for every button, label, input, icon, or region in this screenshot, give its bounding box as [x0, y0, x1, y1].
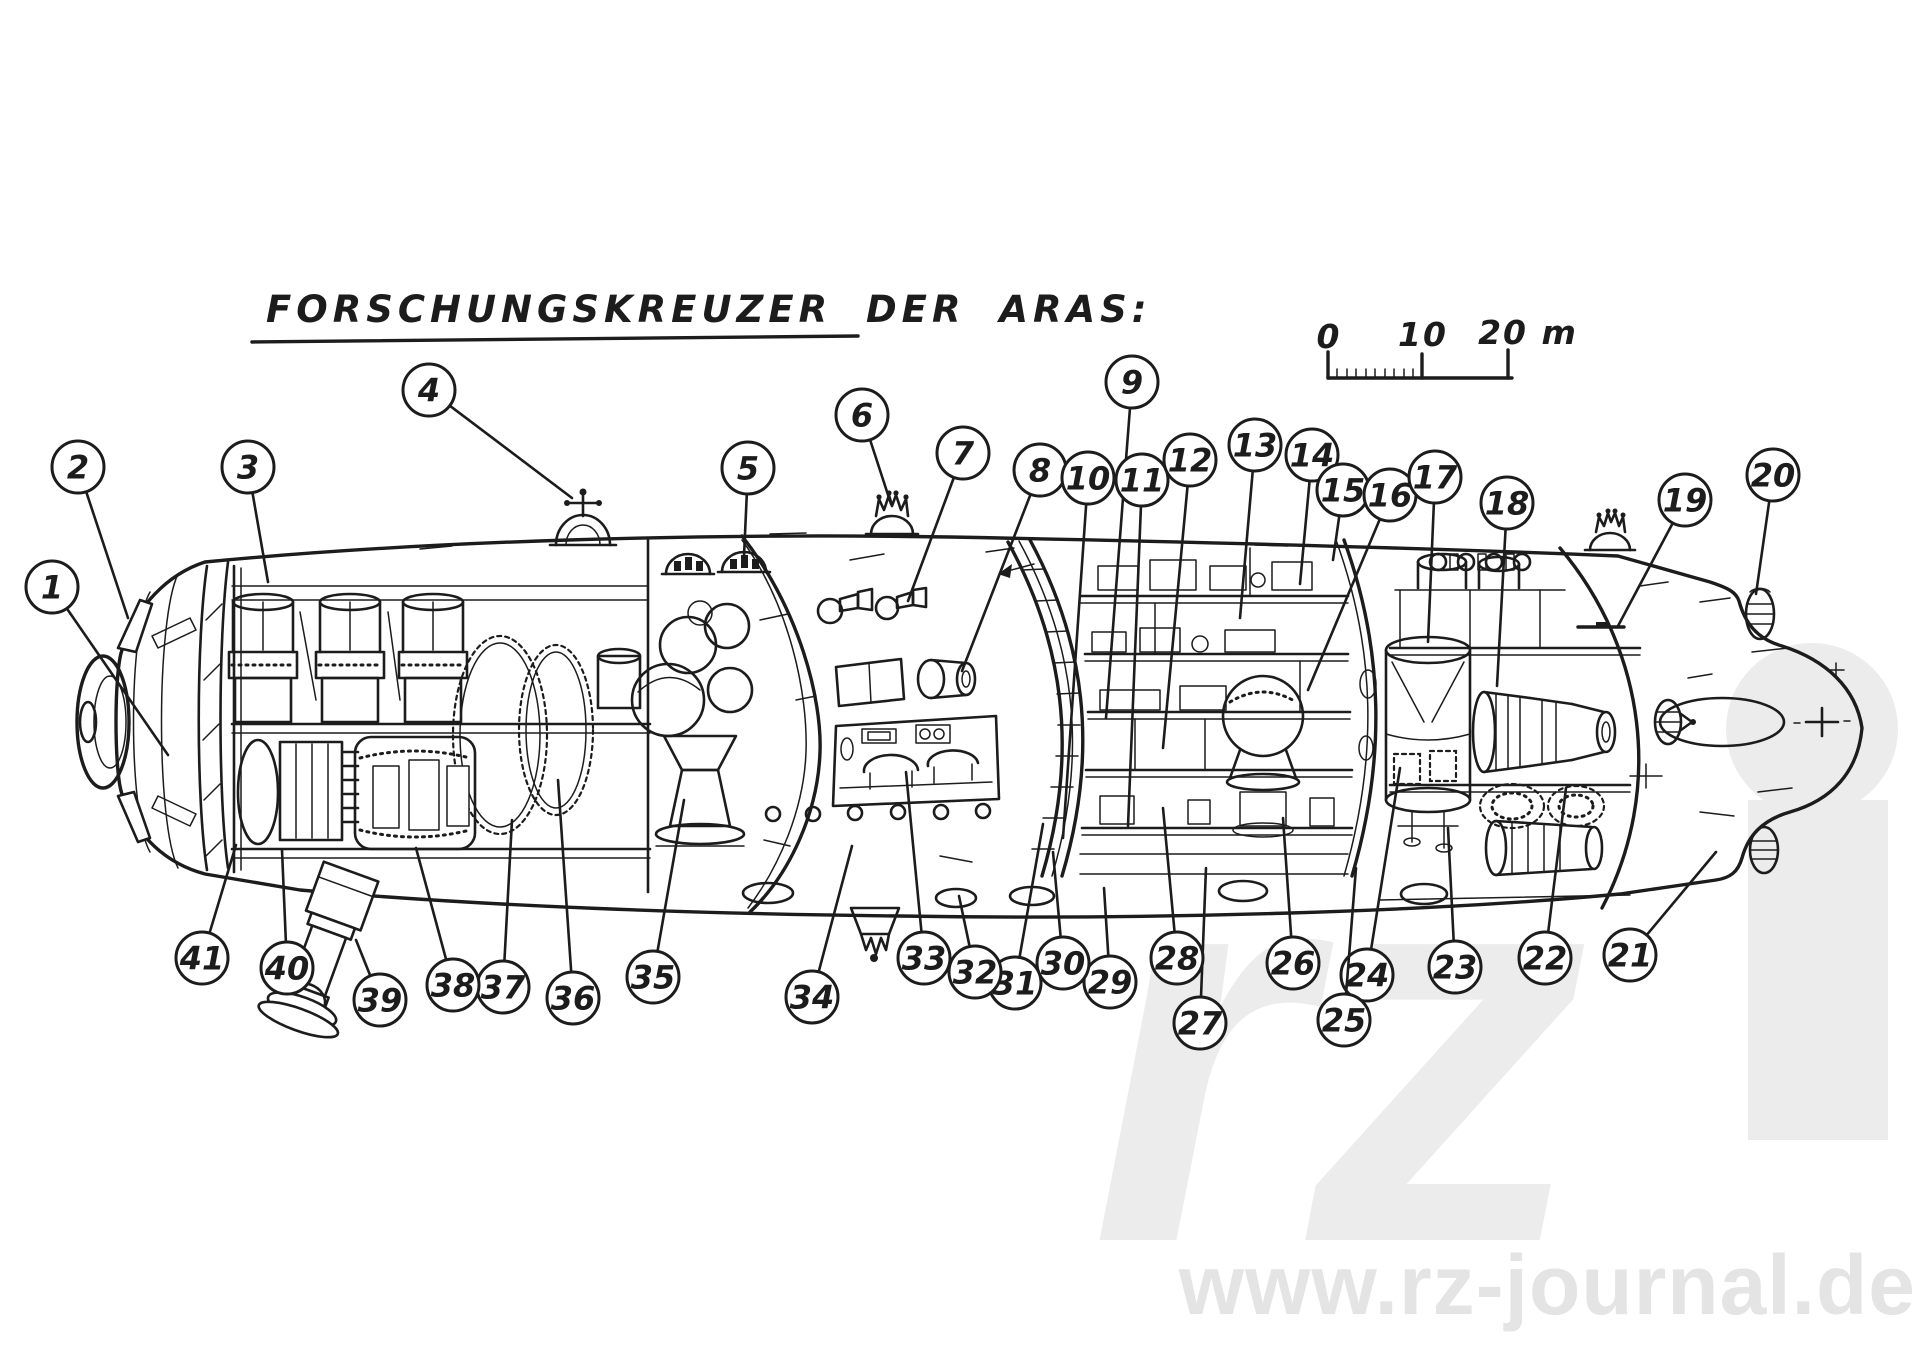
callout-number-6: 6 — [851, 397, 873, 435]
control-console — [833, 716, 999, 806]
scale-label-0: 0 — [1317, 317, 1342, 356]
viewport-window — [836, 659, 904, 706]
callout-leader-12 — [1163, 486, 1188, 748]
callout-leader-20 — [1756, 501, 1769, 594]
scale-bar: 0 10 20 m — [1317, 313, 1578, 378]
diagram-title: FORSCHUNGSKREUZER DER ARAS: — [266, 288, 1152, 331]
callout-number-34: 34 — [790, 979, 835, 1017]
callout-number-18: 18 — [1485, 485, 1530, 523]
callout-12: 12 — [1163, 434, 1216, 748]
nose-section — [77, 562, 228, 870]
callout-7: 7 — [908, 427, 989, 601]
watermark-bar-shape — [1748, 800, 1888, 1140]
callout-number-41: 41 — [179, 940, 225, 978]
title-underline — [252, 336, 858, 342]
scope-cylinder — [918, 660, 975, 698]
callout-8: 8 — [962, 444, 1066, 671]
callout-leader-8 — [962, 494, 1031, 671]
callout-number-36: 36 — [551, 980, 596, 1018]
callout-number-37: 37 — [481, 969, 526, 1007]
fuel-cylinder-stacks — [229, 594, 467, 722]
callout-number-5: 5 — [737, 450, 759, 488]
callout-leader-2 — [86, 492, 128, 618]
callout-number-22: 22 — [1523, 940, 1568, 978]
callout-leader-31 — [1020, 824, 1043, 957]
radio-dome — [550, 489, 616, 546]
callout-number-25: 25 — [1322, 1002, 1367, 1040]
cutaway-diagram-svg: rz www.rz-journal.de FORSCHUNGSKREUZER D… — [0, 0, 1920, 1356]
callout-leader-17 — [1428, 503, 1434, 642]
callout-number-10: 10 — [1066, 460, 1111, 498]
callout-21: 21 — [1604, 852, 1716, 981]
callout-number-23: 23 — [1433, 949, 1478, 987]
callout-36: 36 — [547, 780, 599, 1024]
callout-number-27: 27 — [1178, 1005, 1223, 1043]
scanned-cutaway-diagram-page: rz www.rz-journal.de FORSCHUNGSKREUZER D… — [0, 0, 1920, 1356]
callout-6: 6 — [836, 389, 891, 504]
callout-number-40: 40 — [264, 950, 310, 988]
callout-number-30: 30 — [1041, 945, 1086, 983]
nose-top-fin — [118, 600, 152, 652]
title-block: FORSCHUNGSKREUZER DER ARAS: — [252, 288, 1152, 342]
callout-leader-4 — [450, 406, 572, 498]
callout-number-24: 24 — [1345, 957, 1390, 995]
callout-leader-6 — [870, 440, 891, 504]
drum-assembly — [238, 737, 475, 849]
callout-number-16: 16 — [1368, 477, 1413, 515]
crown-antenna-dome-mid — [866, 490, 918, 534]
scale-bar-ruler — [1328, 350, 1512, 378]
callout-number-12: 12 — [1168, 442, 1213, 480]
callout-leader-3 — [252, 493, 268, 582]
callout-leader-9 — [1106, 408, 1130, 718]
skin-rivet-circles — [766, 804, 990, 821]
callout-number-20: 20 — [1751, 457, 1796, 495]
watermark-url: www.rz-journal.de — [1178, 1238, 1916, 1332]
callout-number-1: 1 — [41, 569, 63, 607]
callout-number-26: 26 — [1271, 945, 1316, 983]
callout-leader-14 — [1300, 481, 1310, 584]
callout-number-33: 33 — [902, 940, 947, 978]
callout-number-32: 32 — [953, 954, 998, 992]
callout-number-39: 39 — [358, 982, 403, 1020]
callout-leader-32 — [959, 896, 970, 947]
callout-32: 32 — [949, 896, 1001, 998]
callout-leader-21 — [1647, 852, 1716, 935]
watermark-dot-shape — [1726, 643, 1898, 815]
callout-leader-41 — [209, 845, 236, 933]
nose-bottom-fin — [118, 792, 150, 842]
callout-number-29: 29 — [1088, 964, 1133, 1002]
callout-leader-7 — [908, 477, 954, 601]
gear-ring-machinery — [453, 636, 640, 834]
grille-dome-left — [662, 554, 714, 574]
callout-number-15: 15 — [1321, 472, 1366, 510]
callout-4: 4 — [403, 364, 572, 498]
stern-turbine-top — [1746, 588, 1774, 639]
callout-13: 13 — [1229, 419, 1281, 618]
scale-label-20m: 20 m — [1478, 313, 1578, 352]
callout-5: 5 — [722, 442, 774, 556]
callout-number-8: 8 — [1029, 452, 1051, 490]
callout-number-13: 13 — [1233, 427, 1278, 465]
callout-number-28: 28 — [1155, 940, 1200, 978]
callout-number-17: 17 — [1413, 459, 1458, 497]
callout-35: 35 — [627, 800, 684, 1003]
callout-39: 39 — [354, 940, 406, 1026]
callout-number-35: 35 — [631, 959, 676, 997]
callout-number-4: 4 — [417, 372, 440, 410]
callout-number-11: 11 — [1120, 462, 1165, 500]
callout-34: 34 — [786, 846, 852, 1023]
callout-leader-39 — [356, 940, 370, 976]
callout-leader-34 — [819, 846, 852, 972]
scale-label-10: 10 — [1398, 315, 1448, 354]
callout-number-9: 9 — [1121, 364, 1143, 402]
callout-number-38: 38 — [431, 967, 476, 1005]
callout-number-19: 19 — [1663, 482, 1708, 520]
callout-20: 20 — [1747, 449, 1799, 594]
callout-17: 17 — [1409, 451, 1461, 642]
callout-number-3: 3 — [237, 449, 259, 487]
callout-9: 9 — [1106, 356, 1158, 718]
callout-number-21: 21 — [1608, 937, 1653, 975]
callout-number-7: 7 — [952, 435, 975, 473]
callout-leader-15 — [1333, 516, 1339, 560]
callout-leader-37 — [504, 820, 512, 961]
callout-number-2: 2 — [67, 449, 89, 487]
